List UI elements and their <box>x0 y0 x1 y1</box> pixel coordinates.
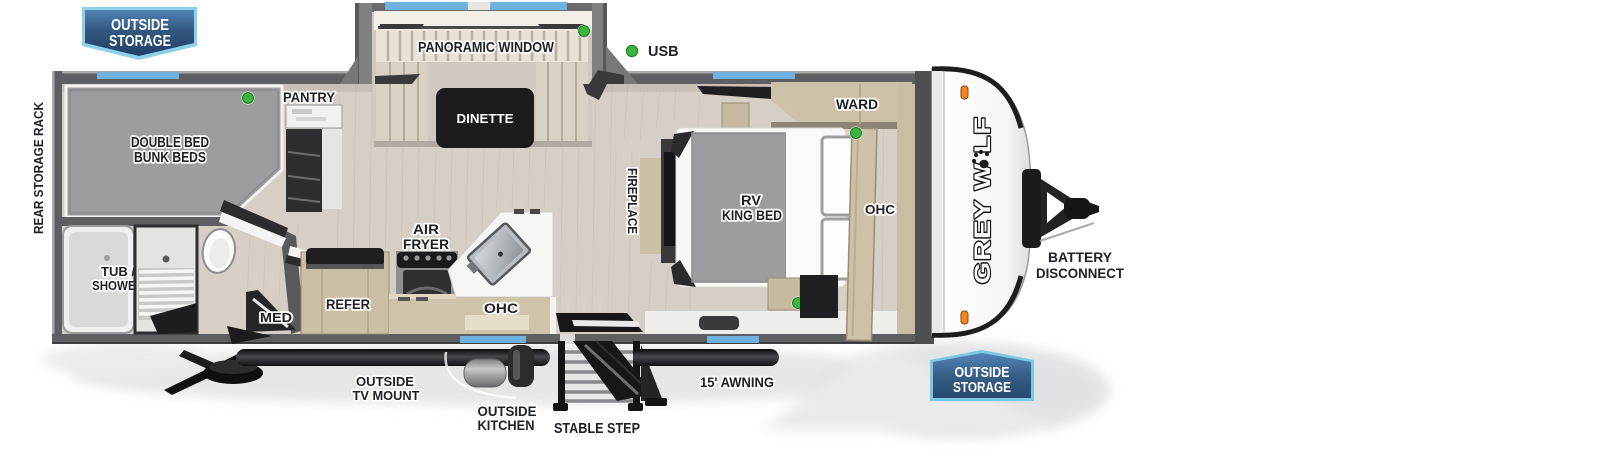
svg-text:GREY W LF: GREY W LF <box>970 116 995 284</box>
svg-text:DINETTE: DINETTE <box>457 111 514 126</box>
svg-text:OHC: OHC <box>484 300 518 316</box>
svg-text:MED: MED <box>260 310 292 325</box>
svg-text:FRYER: FRYER <box>403 236 449 252</box>
svg-text:KING BED: KING BED <box>722 208 782 223</box>
svg-text:REFER: REFER <box>326 296 370 312</box>
svg-text:STORAGE: STORAGE <box>953 380 1011 396</box>
svg-text:PANTRY: PANTRY <box>283 89 336 105</box>
svg-text:KITCHEN: KITCHEN <box>478 417 535 433</box>
svg-text:OUTSIDE: OUTSIDE <box>955 365 1010 381</box>
svg-text:BATTERY: BATTERY <box>1048 250 1112 265</box>
svg-text:REAR STORAGE RACK: REAR STORAGE RACK <box>31 101 46 234</box>
svg-text:TUB /: TUB / <box>101 264 135 279</box>
svg-text:OHC: OHC <box>865 202 896 217</box>
svg-text:STORAGE: STORAGE <box>109 33 171 50</box>
svg-text:WARD: WARD <box>836 96 878 112</box>
svg-text:FIREPLACE: FIREPLACE <box>625 168 640 234</box>
svg-text:AIR: AIR <box>413 221 439 237</box>
svg-text:TV MOUNT: TV MOUNT <box>353 388 420 403</box>
svg-text:15' AWNING: 15' AWNING <box>700 374 774 390</box>
svg-text:USB: USB <box>648 44 679 60</box>
svg-text:DISCONNECT: DISCONNECT <box>1036 266 1125 281</box>
svg-text:BUNK BEDS: BUNK BEDS <box>134 149 206 166</box>
svg-text:OUTSIDE: OUTSIDE <box>356 374 414 389</box>
svg-text:STABLE STEP: STABLE STEP <box>554 421 640 437</box>
svg-text:RV: RV <box>741 193 761 208</box>
svg-text:OUTSIDE: OUTSIDE <box>111 17 169 34</box>
svg-text:PANORAMIC WINDOW: PANORAMIC WINDOW <box>418 39 555 56</box>
